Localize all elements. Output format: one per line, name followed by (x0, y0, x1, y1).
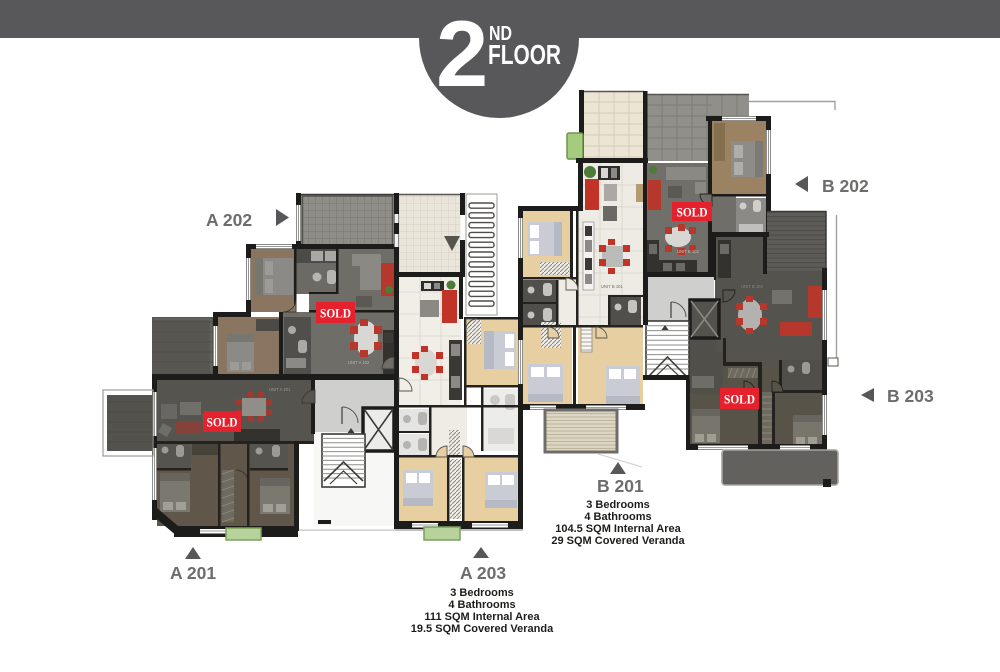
svg-text:UNIT B 102: UNIT B 102 (677, 249, 699, 254)
svg-text:A 203: A 203 (460, 563, 506, 583)
svg-text:A 202: A 202 (206, 210, 252, 230)
svg-text:B 202: B 202 (822, 176, 869, 196)
svg-text:UNIT A 102: UNIT A 102 (348, 360, 370, 365)
svg-text:111 SQM Internal Area: 111 SQM Internal Area (424, 611, 540, 623)
svg-text:4 Bathrooms: 4 Bathrooms (584, 511, 651, 523)
svg-text:19.5 SQM Covered Veranda: 19.5 SQM Covered Veranda (411, 623, 554, 635)
svg-text:UNIT A 101: UNIT A 101 (269, 387, 291, 392)
svg-text:4 Bathrooms: 4 Bathrooms (448, 599, 515, 611)
svg-text:3 Bedrooms: 3 Bedrooms (586, 499, 650, 511)
svg-text:FLOOR: FLOOR (488, 39, 561, 70)
svg-text:SOLD: SOLD (724, 393, 755, 407)
svg-text:104.5 SQM Internal Area: 104.5 SQM Internal Area (555, 523, 681, 535)
svg-text:SOLD: SOLD (677, 206, 708, 220)
svg-text:SOLD: SOLD (320, 307, 351, 321)
svg-text:SOLD: SOLD (207, 416, 238, 430)
svg-text:UNIT B 103: UNIT B 103 (741, 284, 763, 289)
svg-text:A 201: A 201 (170, 563, 216, 583)
svg-text:2: 2 (436, 1, 488, 106)
svg-text:29 SQM Covered Veranda: 29 SQM Covered Veranda (551, 535, 685, 547)
svg-text:B 203: B 203 (887, 386, 934, 406)
svg-text:UNIT B 101: UNIT B 101 (601, 284, 623, 289)
svg-text:B 201: B 201 (597, 476, 644, 496)
svg-text:3 Bedrooms: 3 Bedrooms (450, 587, 514, 599)
